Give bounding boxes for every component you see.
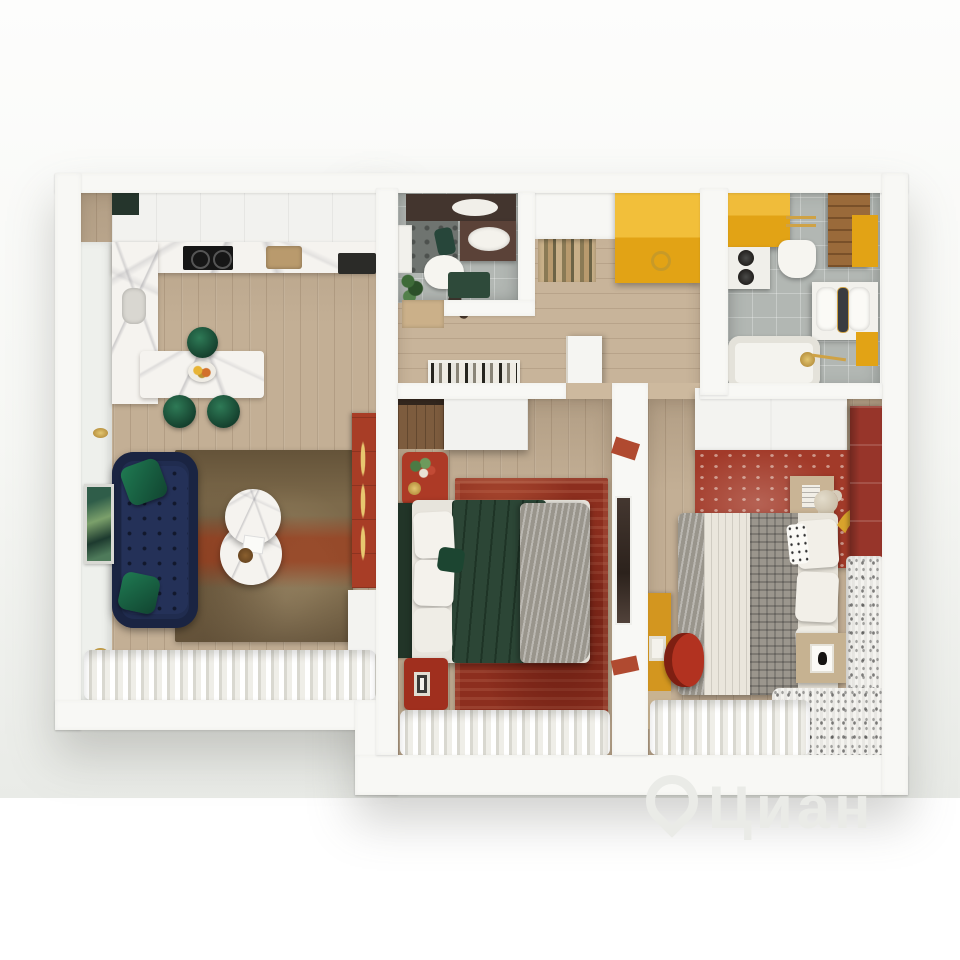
gold-sconce-top <box>93 428 108 438</box>
console-flowers <box>406 455 438 483</box>
wall-living-bottom <box>55 700 398 730</box>
sofa-pillow-bottom <box>116 570 161 615</box>
bar-stool-top <box>187 327 218 358</box>
washer-door-top <box>738 250 754 266</box>
kitchen-window <box>112 192 139 215</box>
bar-stool-left <box>163 395 196 428</box>
bedroom2-threshold <box>648 383 700 399</box>
guest-bath-sink <box>468 227 510 251</box>
bedroom1-wardrobe <box>444 390 528 450</box>
watermark-text: Циан <box>708 778 874 838</box>
divider-mirror <box>617 498 630 623</box>
green-bath-mat <box>448 272 490 298</box>
entrance-doormat <box>538 239 596 282</box>
table-dish <box>238 548 253 563</box>
bedroom1-curtains <box>400 710 610 756</box>
bedroom2-curtains <box>650 700 810 755</box>
bed1-pillow-3 <box>413 607 453 652</box>
wall-corridor-bedroom-a <box>398 383 566 399</box>
bedroom1-wood-desk <box>398 399 444 449</box>
bed2-duvet-white <box>704 513 750 695</box>
bed1-gray-throw <box>520 503 590 663</box>
coffee-station <box>266 246 302 269</box>
console-gold-lamp <box>408 482 421 495</box>
bed1-headboard <box>396 503 413 658</box>
gold-towel-ladder <box>786 211 816 227</box>
basin-left <box>816 287 838 331</box>
bar-stool-right <box>207 395 240 428</box>
green-wall-art <box>84 484 114 564</box>
wall-right <box>882 173 908 795</box>
fruit-bowl <box>188 361 216 382</box>
mustard-cabinet-upper-right <box>852 215 878 267</box>
wall-corridor-mainbath <box>700 188 728 395</box>
sideboard-knobs <box>360 438 366 564</box>
wardrobe-ring-handle <box>651 251 671 271</box>
kitchen-upper-cabinets <box>112 192 376 242</box>
wall-top <box>55 173 908 193</box>
wall-guestbath-right <box>518 192 535 303</box>
cooktop-burner-right <box>213 250 232 269</box>
washer-door-bottom <box>738 269 754 285</box>
cian-watermark: Циан <box>646 778 874 838</box>
teddy-bear <box>814 490 838 514</box>
entrance-door <box>532 192 618 239</box>
guest-bath-door <box>402 300 444 328</box>
left-wall-paneling <box>79 242 112 700</box>
mirror-sink-reflection <box>452 199 498 216</box>
bed2-dotted-pillow <box>786 523 810 565</box>
cooktop-burner-left <box>191 250 210 269</box>
living-curtains <box>84 650 376 700</box>
mustard-cabinet-lower-right <box>856 332 878 366</box>
wall-guestbath-bottom <box>444 300 535 316</box>
red-tulip-chair <box>664 633 704 687</box>
nightstand-switch-plate <box>414 672 430 696</box>
wall-hung-toilet <box>778 240 816 278</box>
wall-living-bedroom1 <box>376 188 398 755</box>
mainbath-upper-cabinet <box>728 190 790 247</box>
kitchen-sink <box>122 288 146 324</box>
cooker-hood <box>338 253 376 274</box>
bedroom1-threshold <box>566 383 612 399</box>
faucet-cluster <box>838 288 848 332</box>
black-figurine <box>818 652 827 665</box>
wall-left <box>55 173 81 730</box>
basin-right <box>848 287 870 331</box>
bed1-green-pillow <box>436 546 465 573</box>
